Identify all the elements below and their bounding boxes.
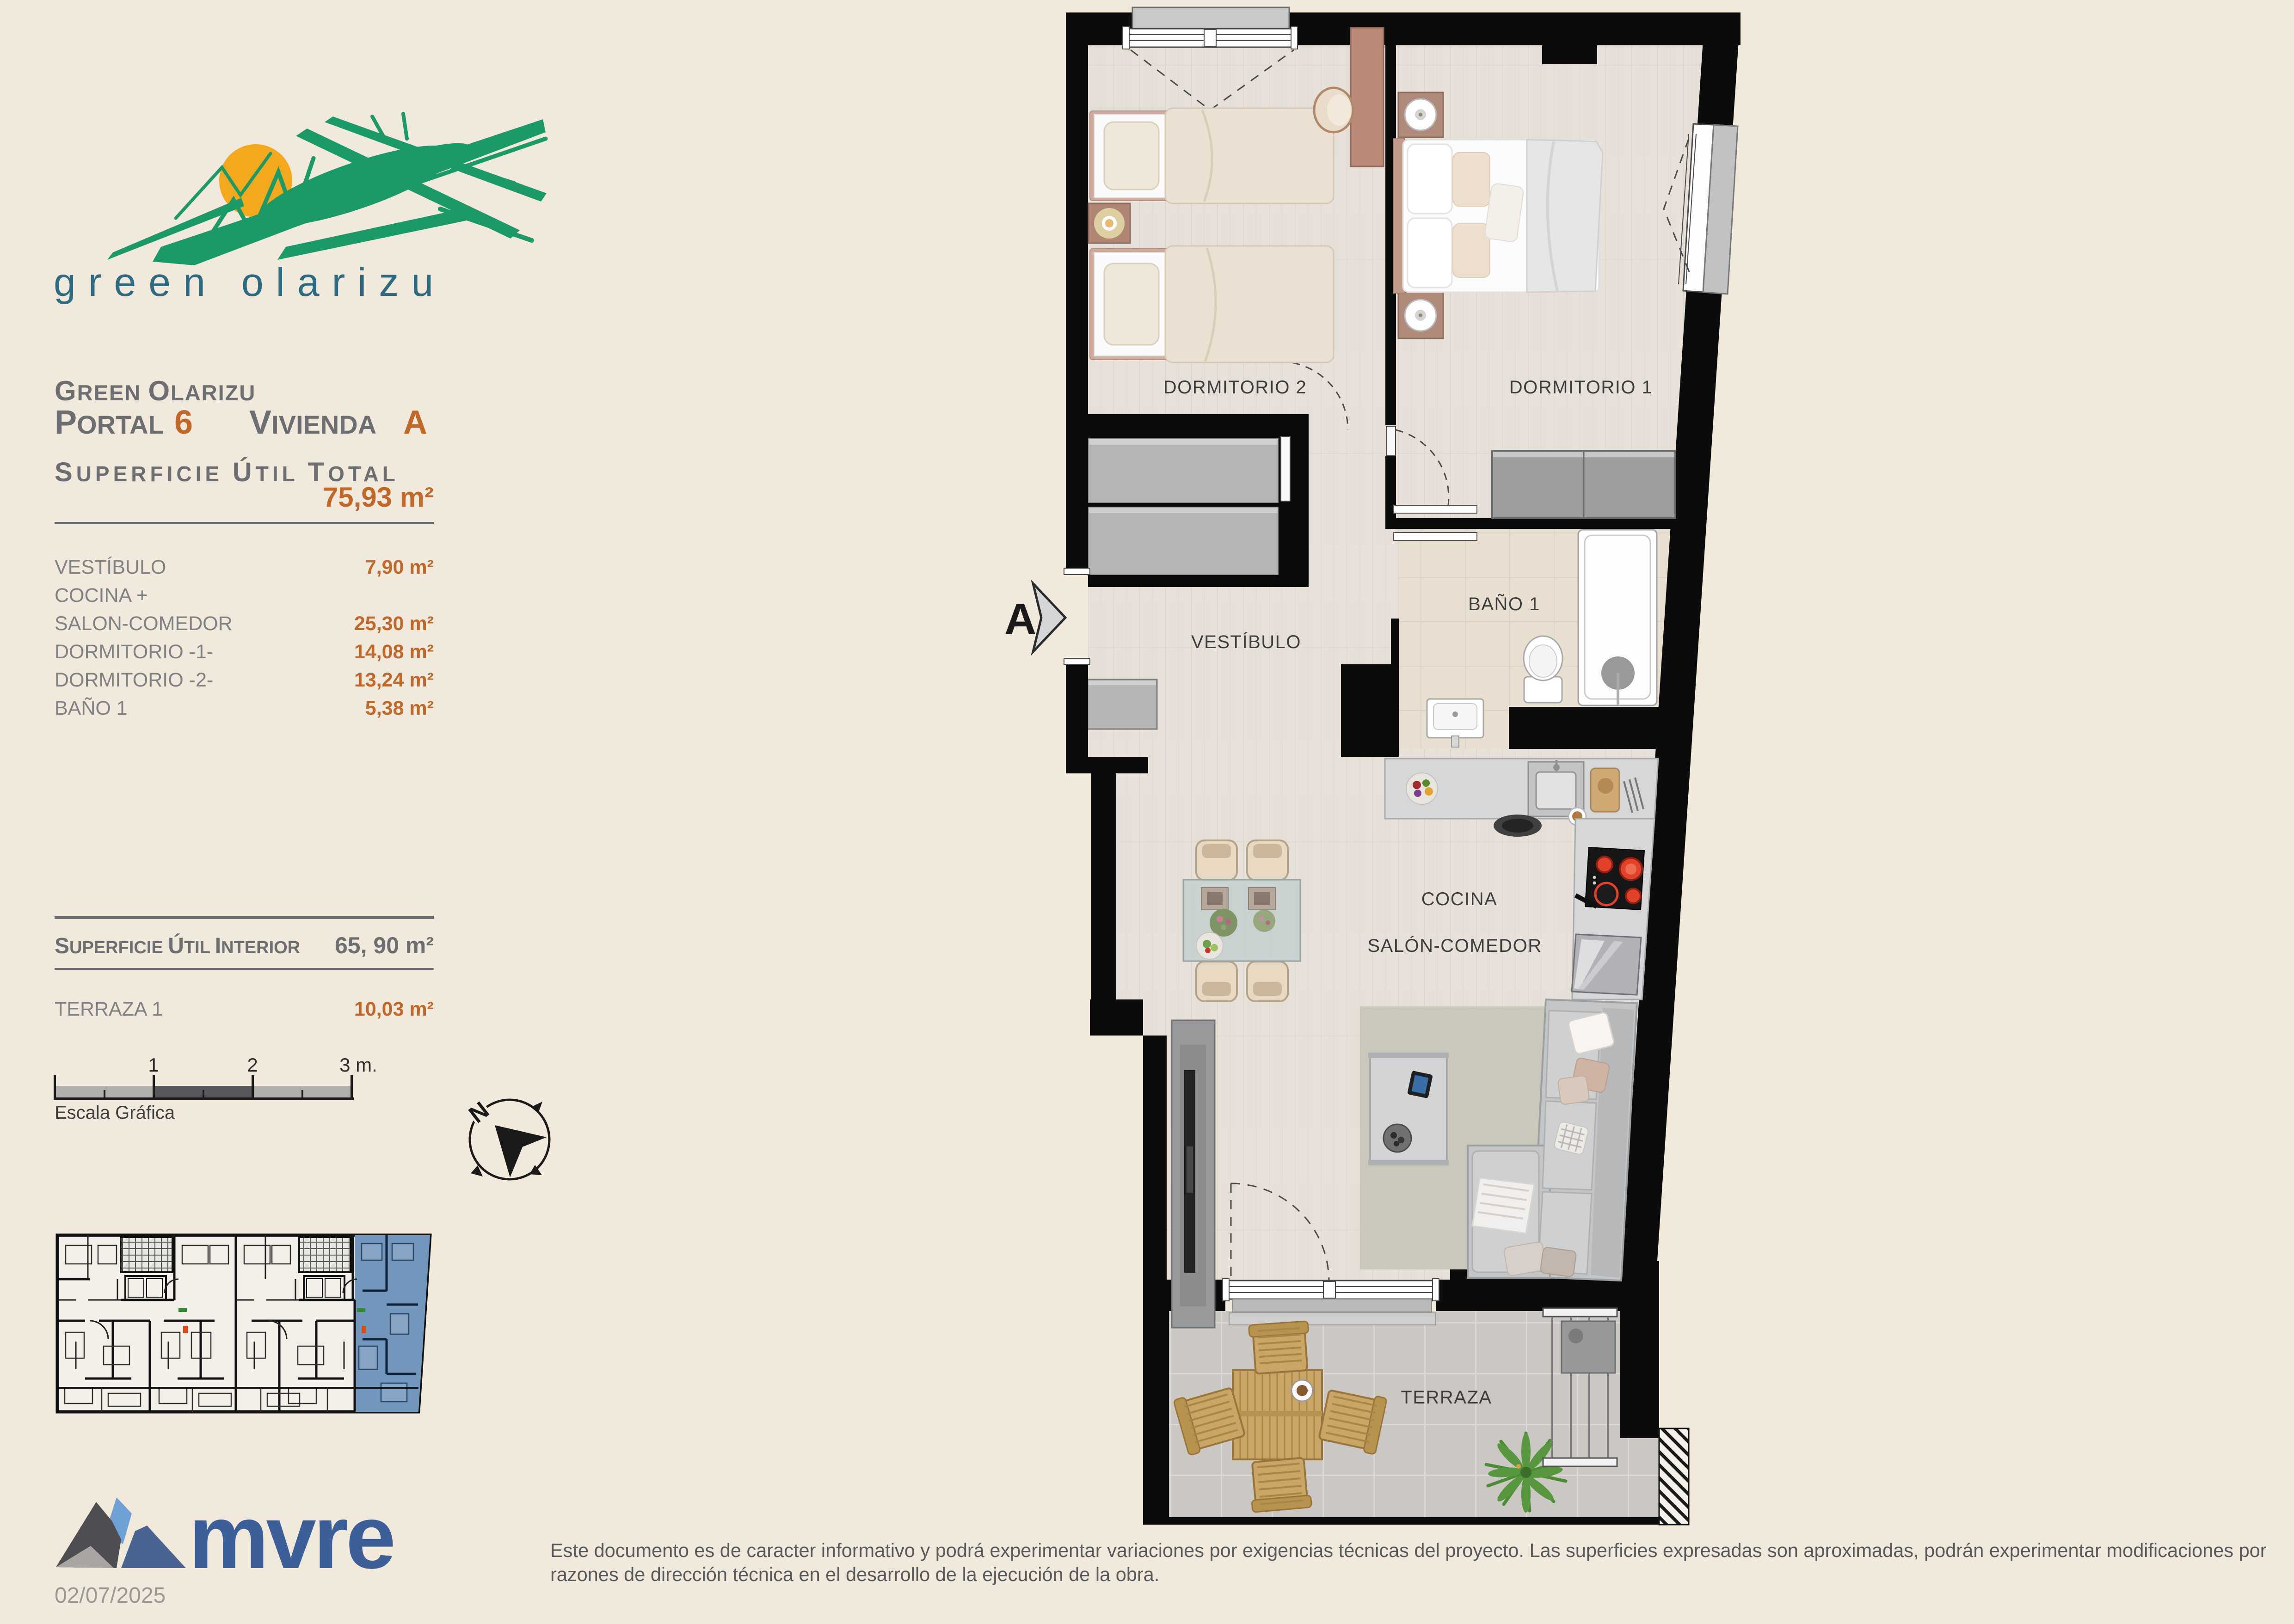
svg-text:3 m.: 3 m.	[339, 1054, 377, 1076]
svg-text:13,24 m²: 13,24 m²	[354, 669, 434, 691]
svg-text:Escala Gráfica: Escala Gráfica	[55, 1103, 175, 1123]
svg-text:BAÑO 1: BAÑO 1	[55, 697, 128, 719]
svg-text:2: 2	[247, 1054, 258, 1076]
svg-text:VESTÍBULO: VESTÍBULO	[55, 556, 166, 578]
svg-text:SALÓN-COMEDOR: SALÓN-COMEDOR	[1367, 935, 1542, 956]
svg-text:02/07/2025: 02/07/2025	[55, 1583, 166, 1608]
svg-text:mvre: mvre	[189, 1487, 393, 1587]
svg-text:DORMITORIO 1: DORMITORIO 1	[1509, 377, 1653, 398]
svg-text:25,30 m²: 25,30 m²	[354, 613, 434, 635]
svg-text:COCINA +: COCINA +	[55, 584, 148, 607]
svg-text:75,93 m²: 75,93 m²	[323, 482, 434, 513]
svg-text:BAÑO 1: BAÑO 1	[1468, 594, 1540, 614]
svg-text:10,03 m²: 10,03 m²	[354, 998, 434, 1020]
svg-text:14,08 m²: 14,08 m²	[354, 641, 434, 663]
svg-text:5,38 m²: 5,38 m²	[365, 697, 434, 719]
svg-text:DORMITORIO 2: DORMITORIO 2	[1163, 377, 1307, 398]
svg-text:GREEN OLARIZU: GREEN OLARIZU	[55, 375, 256, 406]
svg-text:COCINA: COCINA	[1421, 889, 1498, 909]
svg-text:DORMITORIO -1-: DORMITORIO -1-	[55, 641, 213, 663]
svg-text:1: 1	[148, 1054, 159, 1076]
svg-text:TERRAZA 1: TERRAZA 1	[55, 998, 163, 1020]
svg-text:green olarizu: green olarizu	[54, 260, 446, 305]
svg-text:TERRAZA: TERRAZA	[1401, 1387, 1492, 1408]
svg-text:65, 90 m²: 65, 90 m²	[335, 932, 434, 958]
svg-text:7,90 m²: 7,90 m²	[365, 556, 434, 578]
svg-text:VESTÍBULO: VESTÍBULO	[1191, 631, 1301, 652]
svg-text:SALON-COMEDOR: SALON-COMEDOR	[55, 613, 233, 635]
svg-text:DORMITORIO -2-: DORMITORIO -2-	[55, 669, 213, 691]
svg-text:A: A	[1004, 594, 1036, 644]
svg-text:Este documento es de caracter: Este documento es de caracter informativ…	[550, 1539, 2267, 1561]
svg-text:razones de dirección técnica e: razones de dirección técnica en el desar…	[550, 1563, 1159, 1585]
